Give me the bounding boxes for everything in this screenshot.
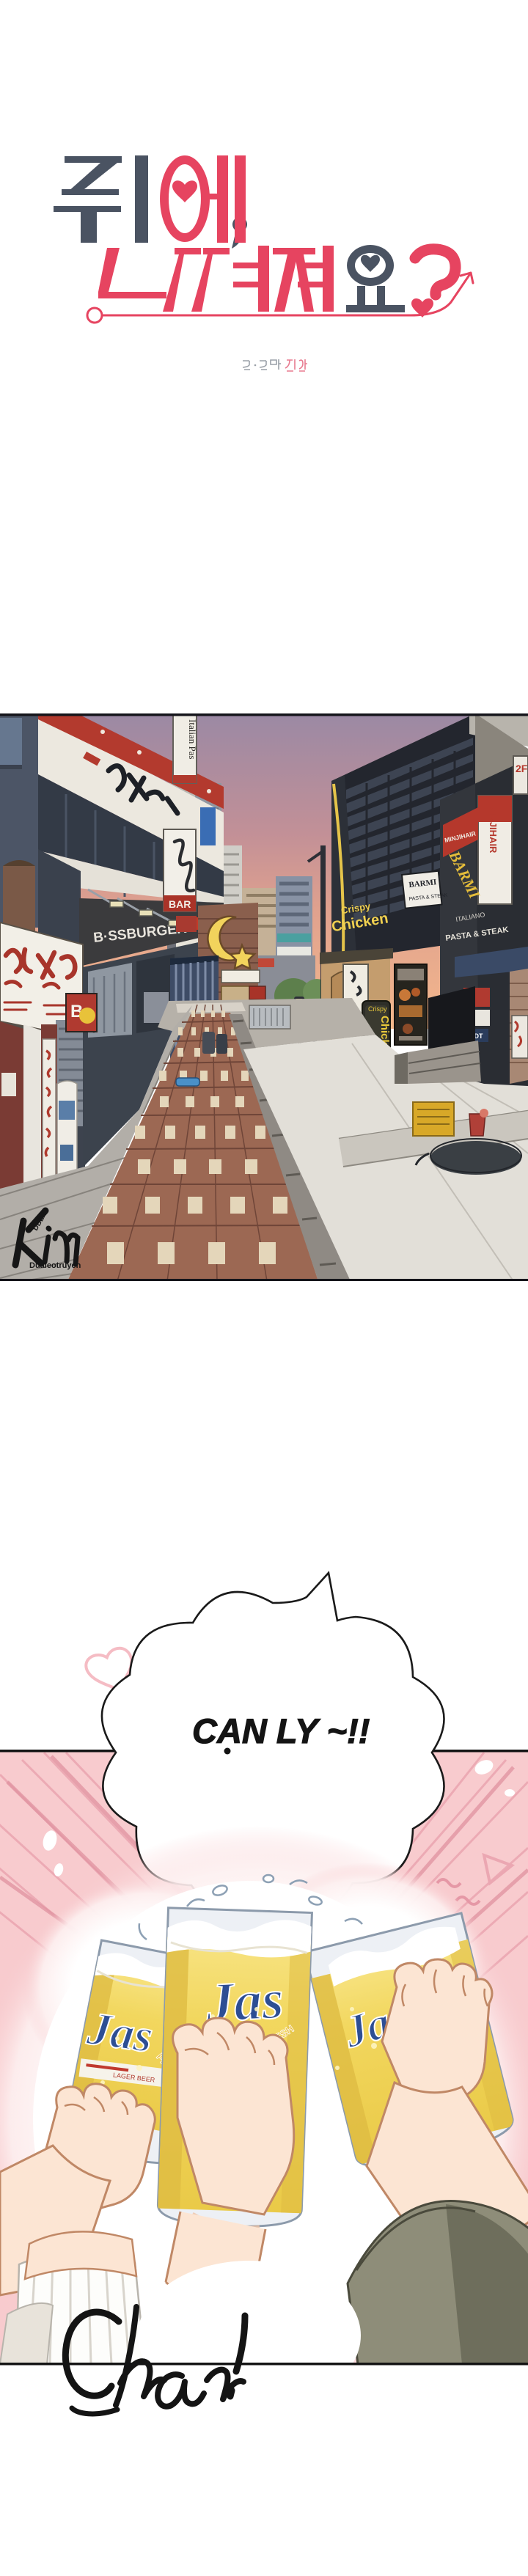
svg-text:Jas: Jas: [84, 2002, 156, 2063]
svg-text:CAN LY ~!!: CAN LY ~!!: [192, 1711, 370, 1750]
svg-text:MINJIHAIR: MINJIHAIR: [488, 804, 499, 854]
svg-text:BAR: BAR: [169, 898, 191, 910]
svg-text:Crispy: Crispy: [368, 1005, 387, 1013]
svg-text:Italian Pas: Italian Pas: [187, 719, 198, 760]
svg-text:Dualeotruyen: Dualeotruyen: [29, 1261, 81, 1270]
svg-text:2F: 2F: [516, 763, 528, 774]
